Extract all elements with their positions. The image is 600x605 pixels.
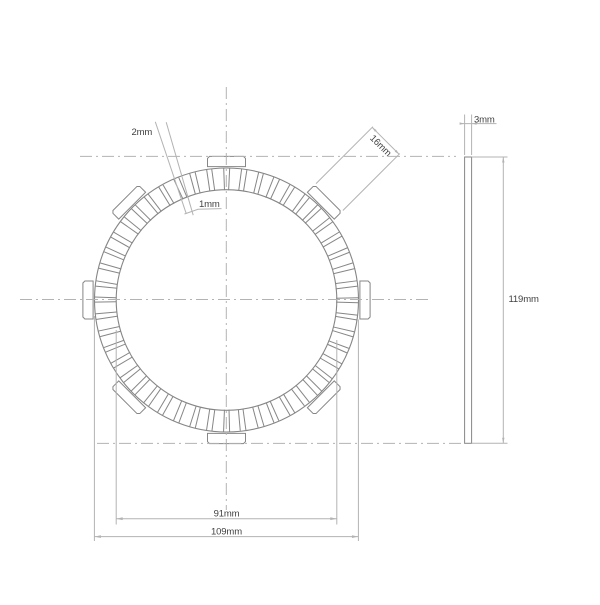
svg-text:109mm: 109mm: [211, 527, 242, 538]
svg-text:3mm: 3mm: [474, 114, 495, 125]
svg-text:119mm: 119mm: [509, 294, 539, 305]
svg-text:91mm: 91mm: [214, 509, 240, 520]
svg-text:2mm: 2mm: [132, 127, 153, 138]
svg-text:1mm: 1mm: [199, 199, 220, 210]
